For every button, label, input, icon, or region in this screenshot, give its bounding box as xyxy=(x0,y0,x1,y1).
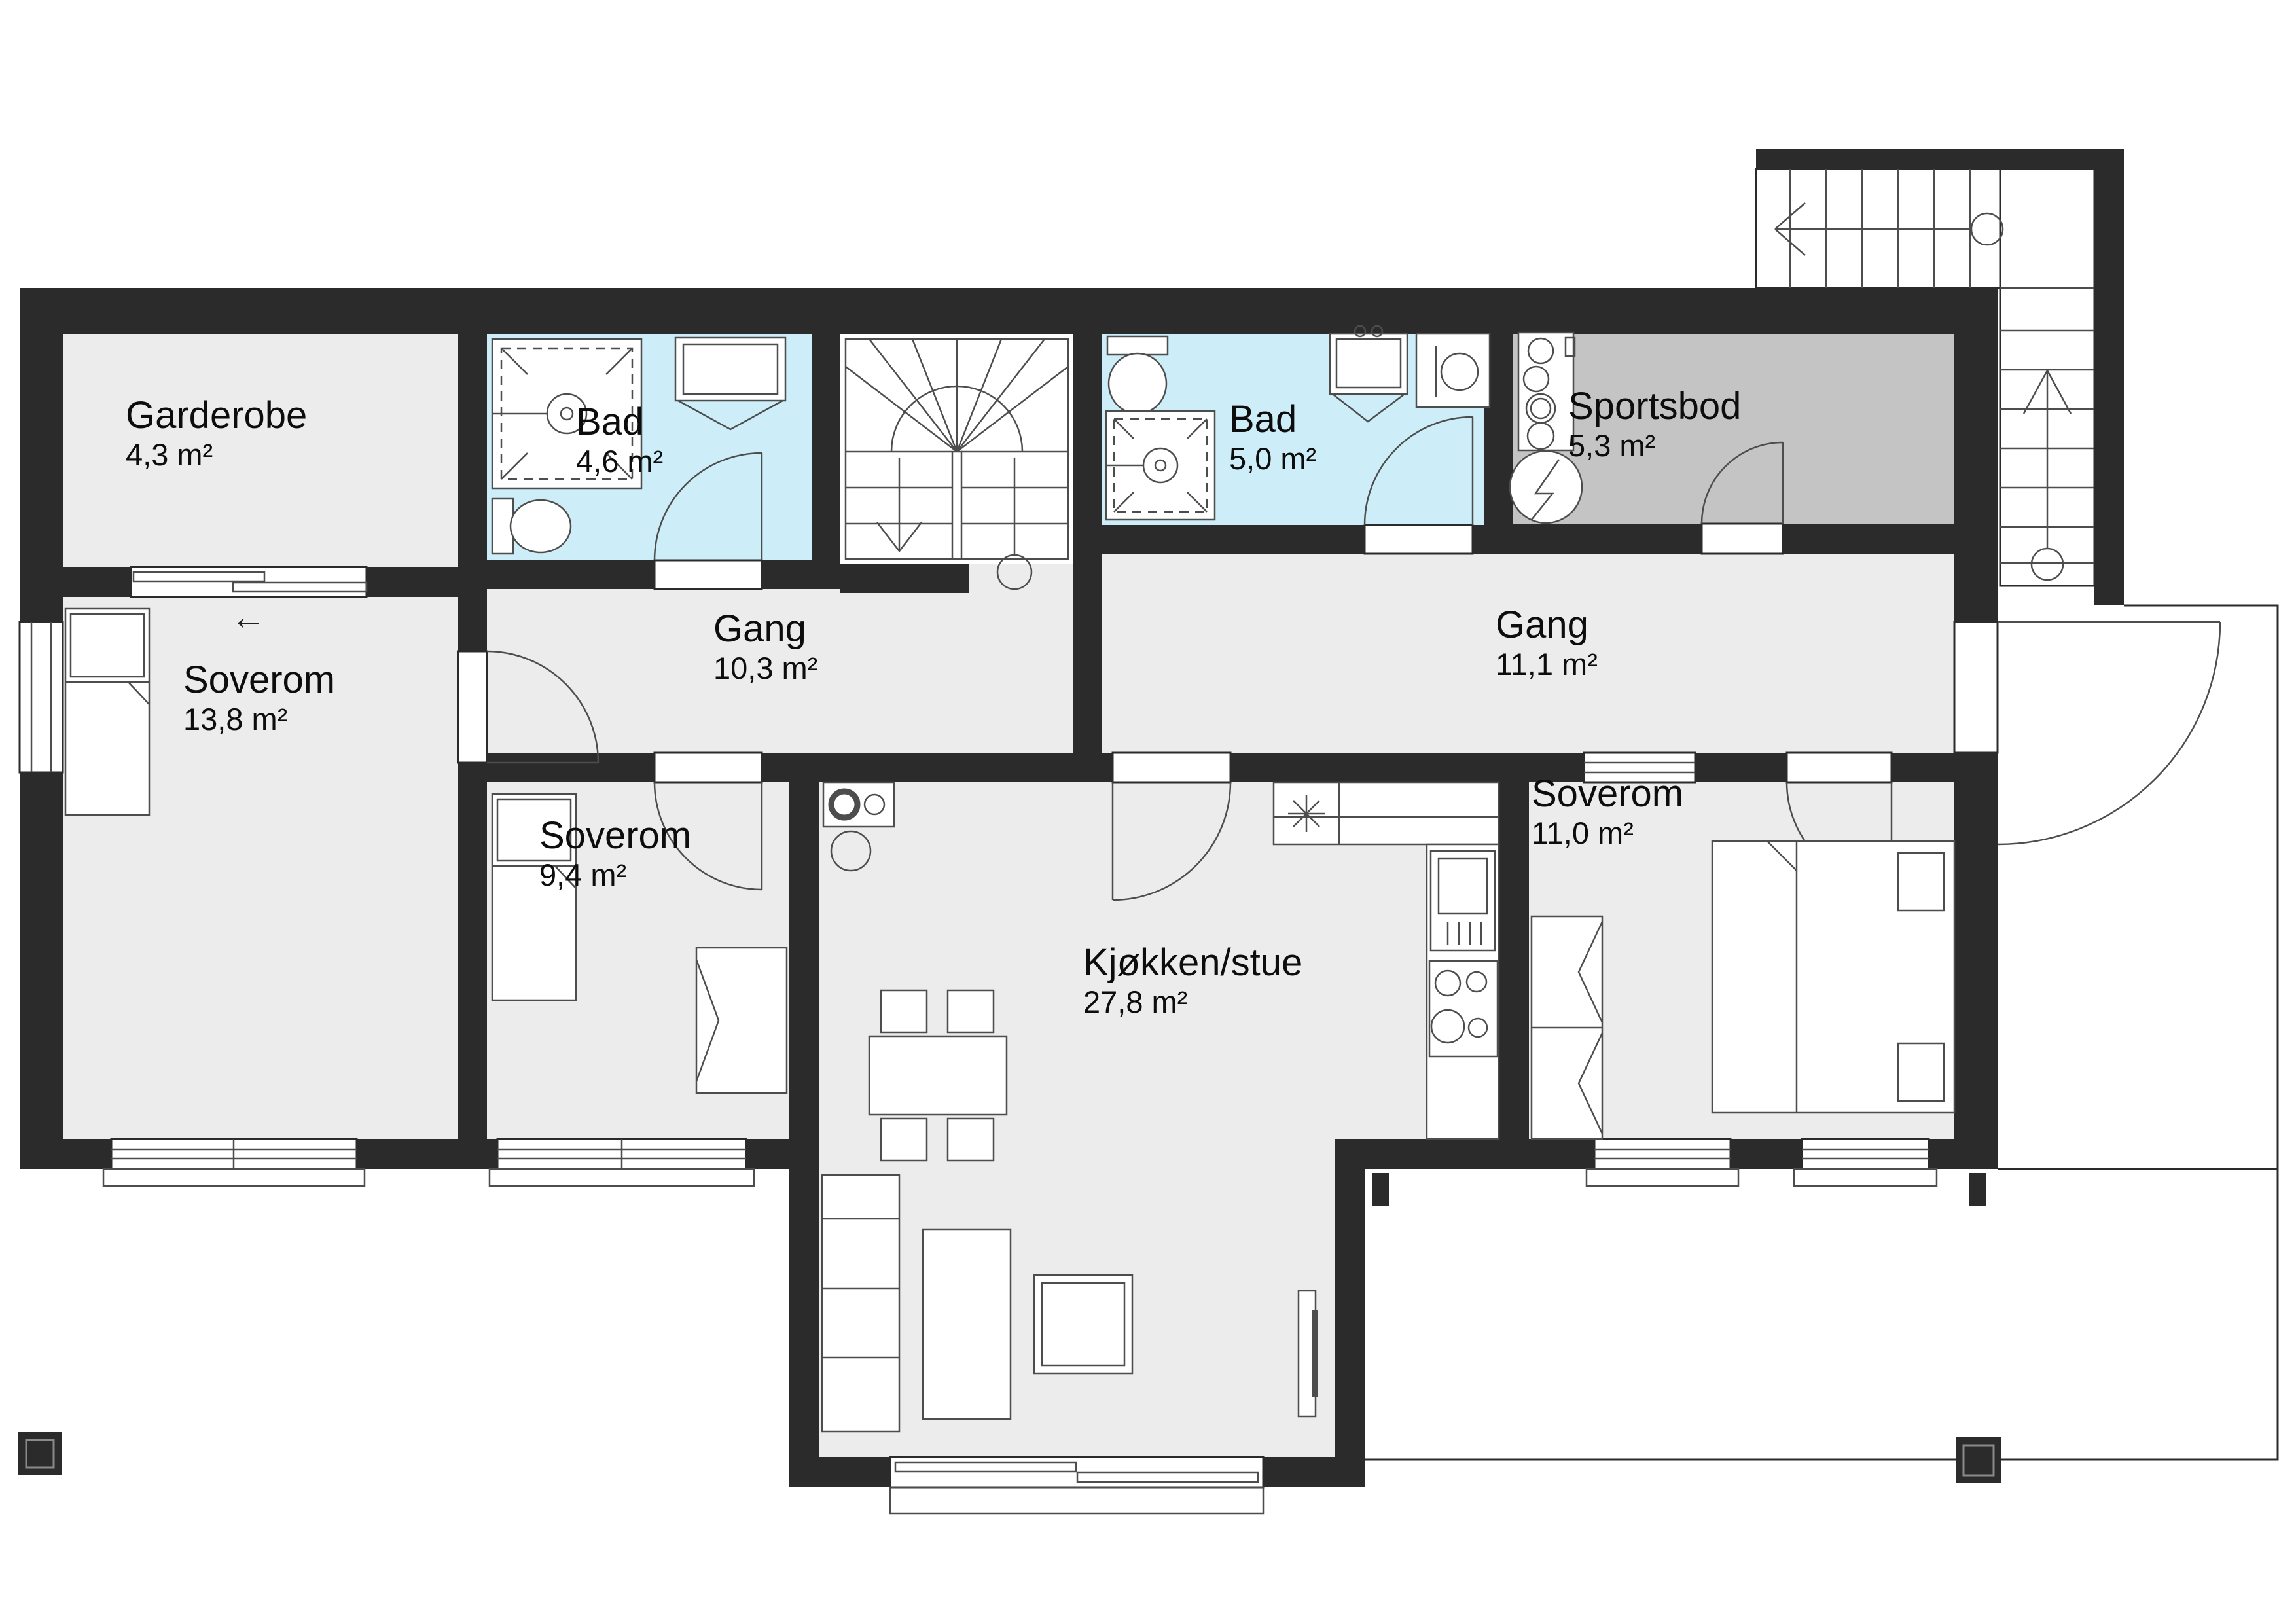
window xyxy=(490,1139,754,1186)
washing-machine-icon xyxy=(1416,334,1490,407)
toilet-icon xyxy=(492,499,571,554)
toilet-icon xyxy=(1107,336,1168,414)
tv-icon xyxy=(1299,1291,1318,1416)
wall-extension-left xyxy=(789,1169,819,1487)
window xyxy=(1794,1139,1937,1186)
wall-stair-bad2 xyxy=(1073,334,1102,782)
cabinet xyxy=(696,948,787,1093)
entry-direction-arrow: ← xyxy=(230,597,266,638)
terrace-corner-post xyxy=(1956,1437,2001,1483)
deck-post xyxy=(18,1432,62,1475)
bed xyxy=(65,609,149,815)
wall-garderobe-bad xyxy=(458,334,487,651)
appliance-symbol xyxy=(1288,795,1325,832)
room-floor-garderobe xyxy=(63,334,458,567)
wall-bad1-stair xyxy=(812,334,840,589)
armchair xyxy=(1034,1275,1132,1373)
stair-guard-wall-right xyxy=(2094,169,2124,605)
wall-garderobe-bottom-b xyxy=(367,567,458,597)
floor-plan: Garderobe4,3 m²Bad4,6 m²Bad5,0 m²Sportsb… xyxy=(0,0,2296,1624)
bed xyxy=(492,794,576,1000)
window xyxy=(1587,1139,1738,1186)
wall-soverom2-kjokken xyxy=(789,782,819,1139)
wall-sportsbod-bottom-b xyxy=(1783,524,1967,554)
wall-kjokken-soverom3 xyxy=(1499,753,1529,1139)
stair-direction-arrow-lower xyxy=(2024,370,2071,580)
wall-bad2-bottom-b xyxy=(1473,525,1484,554)
water-heater-icon xyxy=(1510,451,1582,523)
sliding-door-garderobe xyxy=(131,567,367,597)
soverom-1-furniture xyxy=(65,609,149,815)
cooktop-icon xyxy=(1429,961,1498,1056)
wall-stair-bottom xyxy=(840,564,969,593)
wall-garderobe-bottom-a xyxy=(63,567,131,597)
wall-gang2-bottom-d xyxy=(1892,753,1967,782)
wall-gang2-bottom-c xyxy=(1695,753,1787,782)
shower-icon xyxy=(492,339,641,488)
oven-icon xyxy=(1431,851,1495,950)
terrace-post xyxy=(1372,1173,1389,1206)
interior-window xyxy=(1584,753,1695,782)
sliding-glass-door xyxy=(890,1457,1263,1513)
wall-gang1-bottom-b xyxy=(762,753,1102,782)
stair-opening-floor xyxy=(969,564,1073,593)
shower-icon xyxy=(1106,411,1215,520)
sportsbod-fixtures xyxy=(1510,333,1582,523)
wall-gang2-bottom-b xyxy=(1230,753,1584,782)
wall-sportsbod-bottom-a xyxy=(1513,524,1702,554)
wall-extension-right xyxy=(1335,1169,1365,1487)
wall-soverom1-right xyxy=(458,763,487,1139)
window xyxy=(20,622,63,772)
wall-bad1-bottom-b xyxy=(762,560,812,589)
room-floor-gang-2 xyxy=(1102,554,1967,753)
stair-guard-wall-top xyxy=(1756,149,2124,169)
wall-gang1-bottom-a xyxy=(487,753,655,782)
room-floor-gang-1 xyxy=(487,589,1073,753)
stair-divider-wall xyxy=(952,452,961,559)
terrace-post xyxy=(1969,1173,1986,1206)
coffee-table xyxy=(923,1229,1011,1419)
wardrobe xyxy=(1532,916,1602,1139)
double-bed xyxy=(1712,841,1954,1113)
wall-bad2-bottom-a xyxy=(1102,525,1365,554)
ventilation-unit-icon xyxy=(1518,333,1575,450)
wall-gang2-bottom-a xyxy=(1102,753,1113,782)
floor-plan-drawing xyxy=(0,0,2296,1624)
stair-direction-arrow-upper xyxy=(1775,203,2003,255)
wall-exterior-top xyxy=(20,288,1998,334)
wall-bad1-bottom-a xyxy=(487,560,655,589)
window xyxy=(103,1139,365,1186)
sofa xyxy=(822,1175,899,1432)
